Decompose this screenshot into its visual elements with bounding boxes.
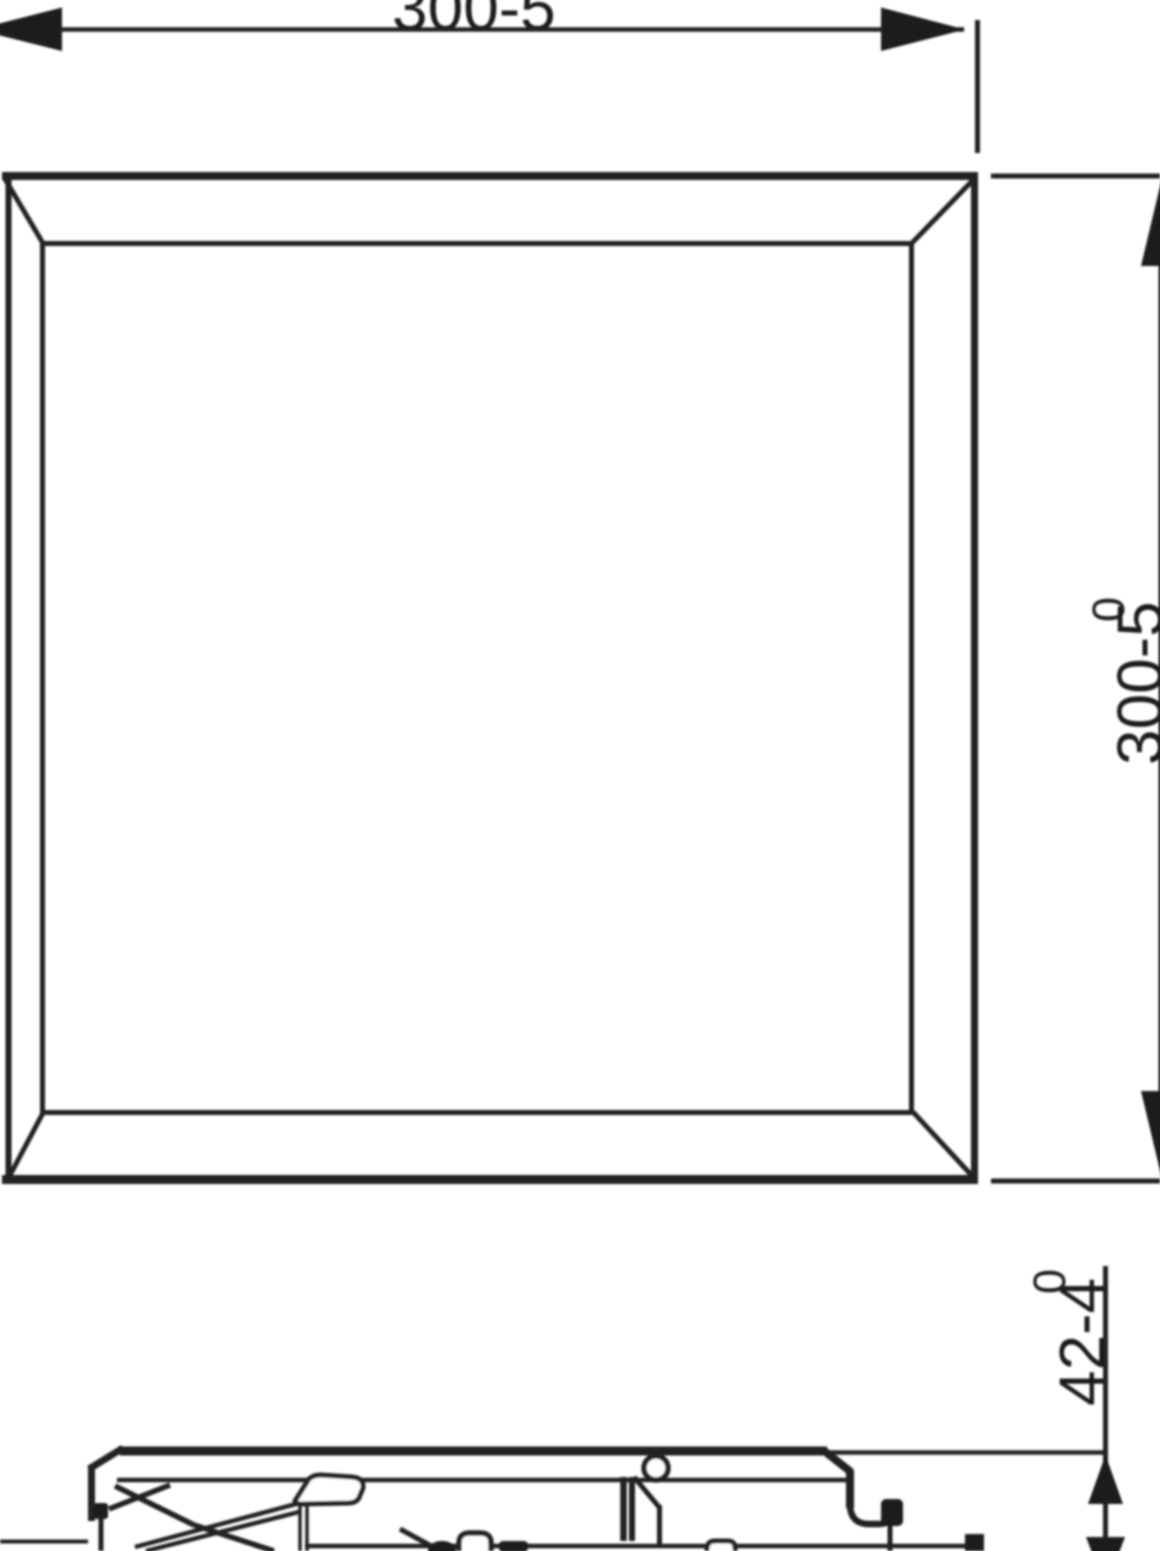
- svg-text:42-4: 42-4: [1046, 1278, 1118, 1406]
- svg-text:300-5: 300-5: [392, 0, 556, 44]
- svg-text:300-5: 300-5: [1104, 601, 1160, 765]
- svg-text:0: 0: [1083, 597, 1134, 622]
- svg-text:0: 0: [1024, 1269, 1075, 1294]
